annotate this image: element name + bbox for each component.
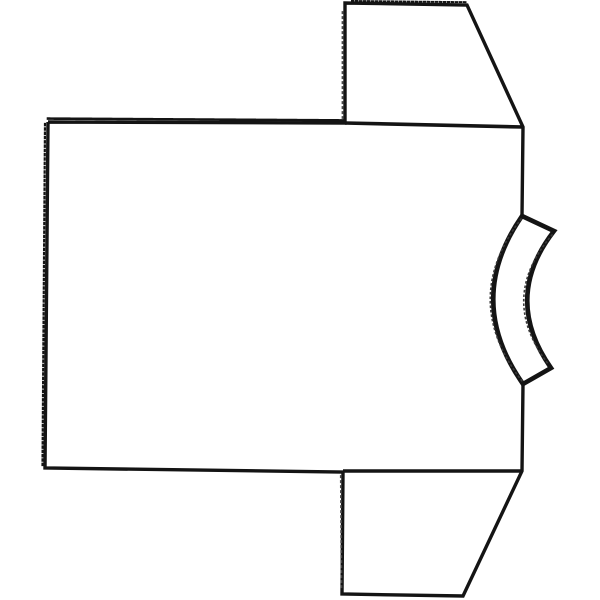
body-top-edge-teeth [48, 119, 345, 121]
top-sleeve-seam-line [345, 123, 523, 127]
tshirt-figure [0, 0, 600, 600]
tshirt-body-silhouette [45, 3, 523, 596]
top-sleeve-top-edge-teeth [352, 1, 466, 2]
illustration-page [0, 0, 600, 600]
tshirt-svg [0, 0, 600, 600]
